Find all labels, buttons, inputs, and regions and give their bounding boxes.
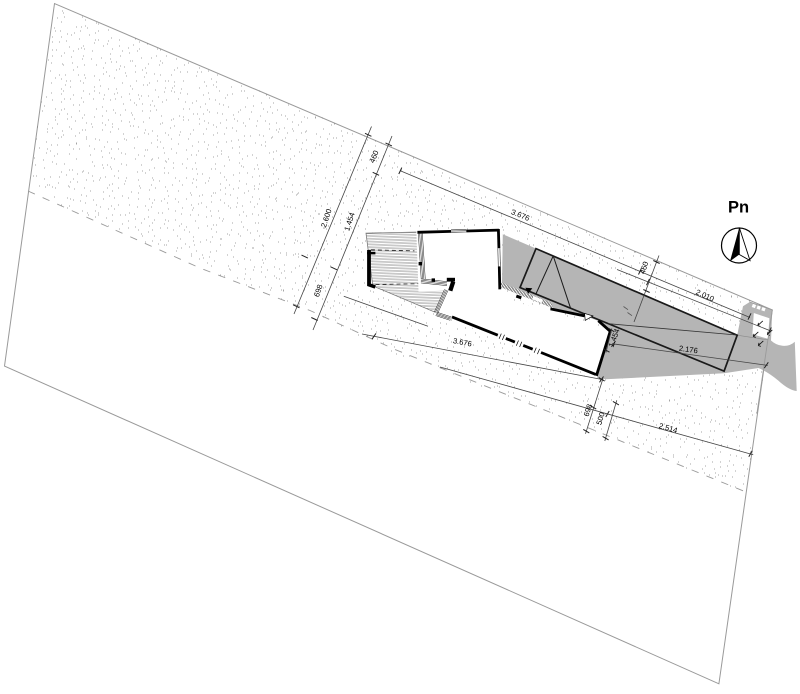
svg-text:Pn: Pn bbox=[728, 199, 749, 217]
